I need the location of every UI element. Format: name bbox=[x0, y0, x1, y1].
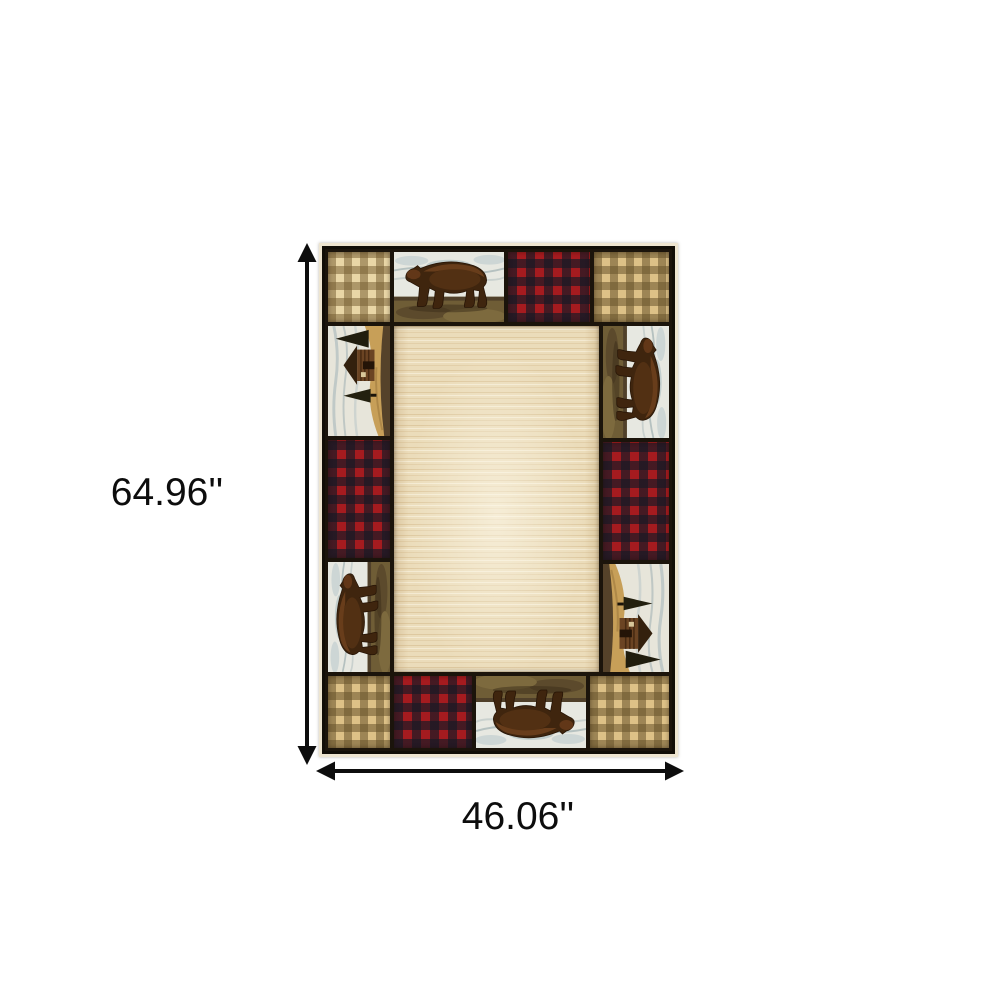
width-dimension-label: 46.06'' bbox=[438, 795, 598, 839]
rug-center-field bbox=[394, 326, 599, 672]
rug-right-border-column bbox=[603, 326, 669, 672]
width-dimension-arrow bbox=[316, 762, 684, 781]
height-dimension-label: 64.96'' bbox=[92, 471, 242, 515]
log-cabin-illustration bbox=[603, 564, 669, 672]
log-cabin-illustration bbox=[328, 326, 390, 436]
height-dimension-arrow bbox=[298, 243, 317, 765]
walking-bear-illustration bbox=[394, 252, 504, 322]
walking-bear-illustration bbox=[603, 326, 669, 438]
rug-patchwork-grid bbox=[322, 246, 675, 754]
patch-red-plaid-left bbox=[328, 440, 390, 558]
patch-tan-plaid-top-left bbox=[328, 252, 390, 322]
patch-cabin-scene-right bbox=[603, 564, 669, 672]
rug-image bbox=[319, 243, 678, 757]
walking-bear-illustration bbox=[476, 676, 586, 748]
patch-bear-scene-left bbox=[328, 562, 390, 672]
product-dimension-diagram: 64.96'' 46.06'' bbox=[0, 0, 1000, 1000]
rug-left-border-column bbox=[328, 326, 390, 672]
patch-bear-scene-top bbox=[394, 252, 504, 322]
patch-red-plaid-right bbox=[603, 442, 669, 560]
rug-middle-band bbox=[328, 326, 669, 672]
patch-tan-plaid-bottom-right bbox=[590, 676, 669, 748]
rug-bottom-border-row bbox=[328, 676, 669, 748]
patch-bear-scene-right bbox=[603, 326, 669, 438]
rug-top-border-row bbox=[328, 252, 669, 322]
patch-bear-scene-bottom bbox=[476, 676, 586, 748]
patch-tan-plaid-bottom-left bbox=[328, 676, 390, 748]
patch-red-plaid-top bbox=[508, 252, 590, 322]
patch-red-plaid-bottom bbox=[394, 676, 472, 748]
patch-tan-plaid-top-right bbox=[594, 252, 669, 322]
walking-bear-illustration bbox=[328, 562, 390, 672]
patch-cabin-scene-left bbox=[328, 326, 390, 436]
